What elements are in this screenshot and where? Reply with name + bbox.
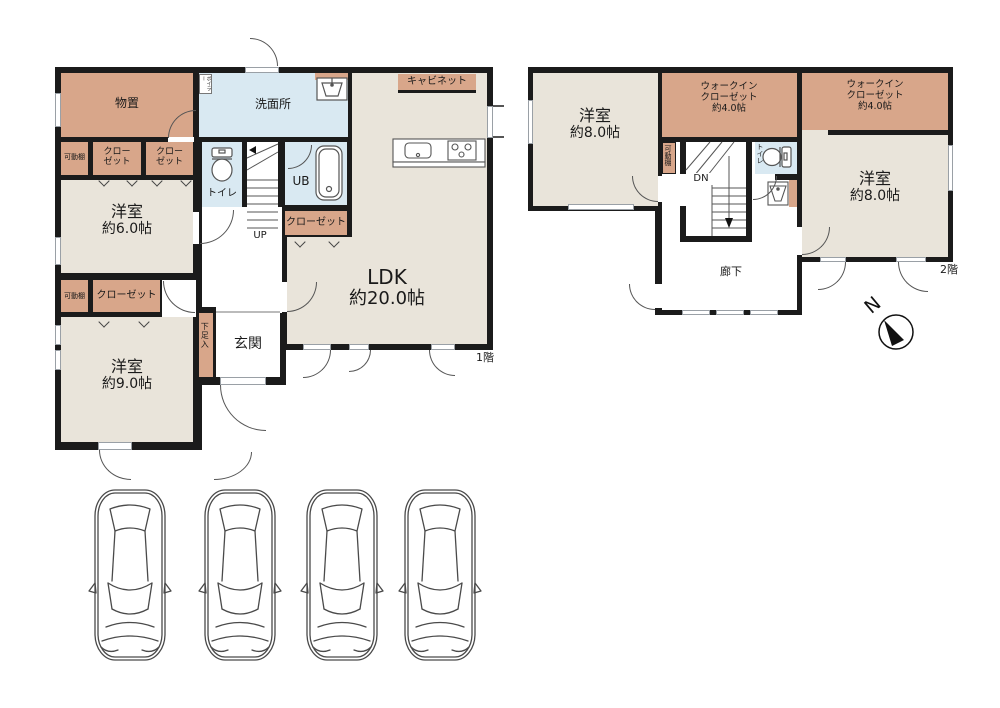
door-opening bbox=[658, 176, 662, 202]
boiler-box: ボイラー bbox=[199, 74, 212, 94]
floor2-label: 2階 bbox=[922, 264, 958, 277]
door-arc bbox=[429, 350, 455, 376]
window bbox=[55, 325, 61, 345]
wall bbox=[398, 90, 476, 93]
bathtub-icon bbox=[315, 145, 343, 201]
compass: N bbox=[858, 290, 928, 360]
closet-opening bbox=[802, 130, 828, 135]
toilet-icon bbox=[207, 146, 237, 184]
door-opening bbox=[193, 212, 199, 244]
window bbox=[716, 310, 744, 315]
door-arc bbox=[220, 385, 266, 431]
window bbox=[98, 442, 132, 450]
window bbox=[55, 93, 61, 127]
door-arc bbox=[818, 262, 846, 290]
wall bbox=[746, 142, 752, 242]
closet-label: クローゼット bbox=[93, 290, 160, 302]
washbasin-icon bbox=[315, 76, 349, 102]
wall bbox=[680, 236, 752, 242]
stairs-down-label: DN bbox=[686, 173, 716, 185]
stairs-up-label: UP bbox=[240, 230, 280, 242]
window bbox=[948, 145, 953, 191]
door-opening bbox=[245, 67, 279, 73]
closet-label: クローゼット bbox=[93, 147, 141, 168]
window bbox=[487, 106, 493, 138]
floor-plan: ボイラー bbox=[0, 0, 1000, 708]
walkin-closet-label: ウォークイン クローゼット 約4.0帖 bbox=[679, 82, 779, 115]
window bbox=[750, 310, 778, 315]
closet-label: クローゼット bbox=[285, 217, 347, 229]
room-washroom-label: 洗面所 bbox=[243, 98, 303, 112]
stairs-down-icon bbox=[686, 142, 746, 236]
toilet-icon bbox=[762, 144, 794, 171]
door-opening bbox=[220, 377, 266, 385]
room-bedroom8-right-label: 洋室 約8.0帖 bbox=[825, 170, 925, 204]
door-arc bbox=[214, 452, 252, 480]
shoe-cupboard-label: 下足入 bbox=[200, 322, 209, 349]
window bbox=[55, 237, 61, 265]
kitchen-counter-icon bbox=[392, 136, 488, 170]
door-arc bbox=[99, 450, 131, 480]
room-bedroom6-label: 洋室 約6.0帖 bbox=[77, 203, 177, 237]
room-bedroom9-label: 洋室 約9.0帖 bbox=[77, 358, 177, 392]
movable-shelf-label: 可動棚 bbox=[61, 292, 88, 300]
movable-shelf-label: 可動棚 bbox=[61, 153, 88, 161]
cabinet-label: キャビネット bbox=[402, 76, 472, 88]
room-toilet-label: トイレ bbox=[202, 188, 242, 200]
car-icon bbox=[198, 487, 282, 663]
entrance-step bbox=[216, 311, 280, 313]
window-sill bbox=[493, 136, 504, 138]
movable-shelf-label: 可動棚 bbox=[664, 145, 672, 166]
corridor-label: 廊下 bbox=[701, 266, 761, 279]
compass-north-label: N bbox=[860, 292, 885, 318]
window bbox=[528, 100, 533, 144]
car-icon bbox=[398, 487, 482, 663]
boiler-label: ボイラー bbox=[201, 76, 211, 92]
door-arc bbox=[250, 38, 278, 66]
floor1-label: 1階 bbox=[458, 352, 494, 365]
walkin-closet-label: ウォークイン クローゼット 約4.0帖 bbox=[825, 80, 925, 113]
door-arc bbox=[303, 350, 331, 378]
washstand-counter bbox=[789, 180, 797, 207]
room-toilet-2f-label: トイレ bbox=[756, 143, 764, 164]
room-bedroom8-left-label: 洋室 約8.0帖 bbox=[545, 107, 645, 141]
room-storage-label: 物置 bbox=[97, 97, 157, 111]
room-entrance-label: 玄関 bbox=[216, 336, 280, 352]
door-opening bbox=[655, 284, 662, 308]
door-arc bbox=[629, 284, 655, 310]
unit-bath-label: UB bbox=[288, 175, 314, 189]
window bbox=[682, 310, 710, 315]
window bbox=[55, 350, 61, 370]
car-icon bbox=[88, 487, 172, 663]
stairs-up-icon bbox=[247, 142, 278, 237]
closet-label: クローゼット bbox=[146, 147, 193, 168]
window bbox=[568, 204, 634, 210]
car-icon bbox=[300, 487, 384, 663]
window-sill bbox=[493, 105, 504, 107]
door-arc bbox=[349, 350, 371, 372]
room-ldk-label: LDK 約20.0帖 bbox=[337, 266, 437, 310]
